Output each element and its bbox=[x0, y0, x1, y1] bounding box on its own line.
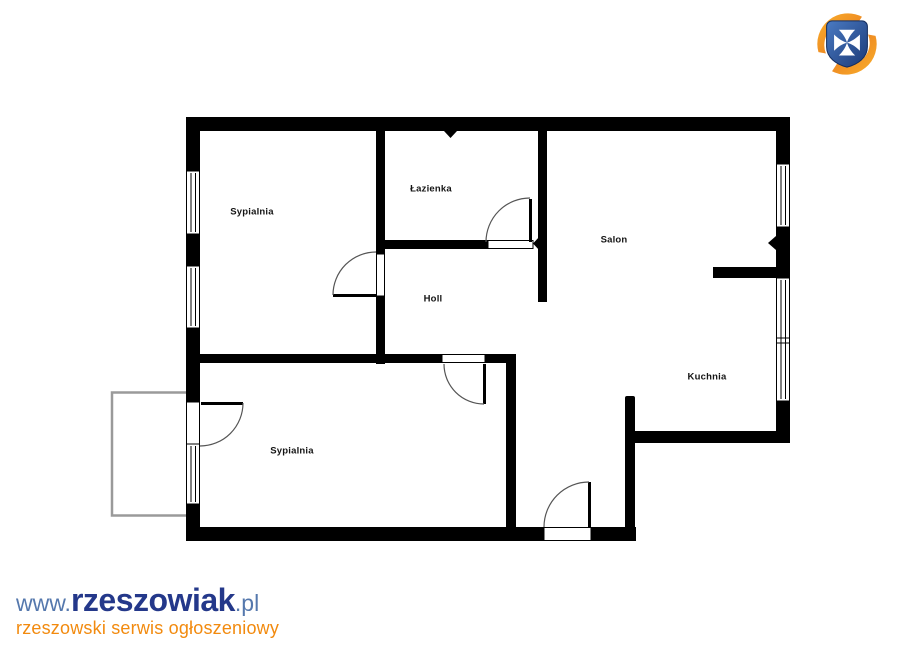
walls bbox=[186, 117, 790, 541]
wall-junction-tick bbox=[768, 236, 776, 250]
page: Sypialnia Łazienka Holl Salon Kuchnia Sy… bbox=[0, 0, 900, 658]
balcony-door-arc bbox=[200, 403, 243, 446]
window bbox=[187, 444, 200, 504]
floor-plan bbox=[0, 0, 900, 658]
url-suffix: .pl bbox=[235, 592, 259, 615]
room-label-sypialnia-2: Sypialnia bbox=[270, 446, 314, 457]
entrance-door-sill bbox=[544, 528, 591, 541]
window bbox=[187, 171, 200, 234]
bedroom2-door-arc bbox=[444, 364, 484, 404]
balcony-door-sill bbox=[187, 402, 200, 444]
bathroom-door-arc bbox=[486, 198, 530, 242]
bedroom1-door-sill bbox=[377, 254, 385, 296]
room-label-holl: Holl bbox=[424, 294, 443, 305]
brand-name: rzeszowiak bbox=[71, 584, 235, 616]
window bbox=[777, 278, 790, 401]
room-label-sypialnia-1: Sypialnia bbox=[230, 207, 274, 218]
rzeszowiak-logo bbox=[813, 10, 881, 78]
site-tagline: rzeszowski serwis ogłoszeniowy bbox=[16, 619, 279, 637]
bedroom2-door-sill bbox=[442, 355, 485, 363]
window bbox=[777, 164, 790, 227]
entrance-door-arc bbox=[544, 482, 589, 527]
door-sills bbox=[187, 241, 592, 541]
site-branding: www.rzeszowiak.pl rzeszowski serwis ogło… bbox=[16, 584, 279, 637]
room-label-salon: Salon bbox=[601, 235, 628, 246]
wall-junction-tick bbox=[444, 131, 457, 138]
room-label-kuchnia: Kuchnia bbox=[688, 372, 727, 383]
bathroom-door-sill bbox=[488, 241, 533, 249]
bedroom1-door-arc bbox=[333, 252, 376, 295]
room-label-lazienka: Łazienka bbox=[410, 184, 452, 195]
site-url: www.rzeszowiak.pl bbox=[16, 584, 279, 616]
window bbox=[187, 266, 200, 328]
url-prefix: www. bbox=[16, 592, 71, 615]
balcony bbox=[112, 393, 188, 516]
